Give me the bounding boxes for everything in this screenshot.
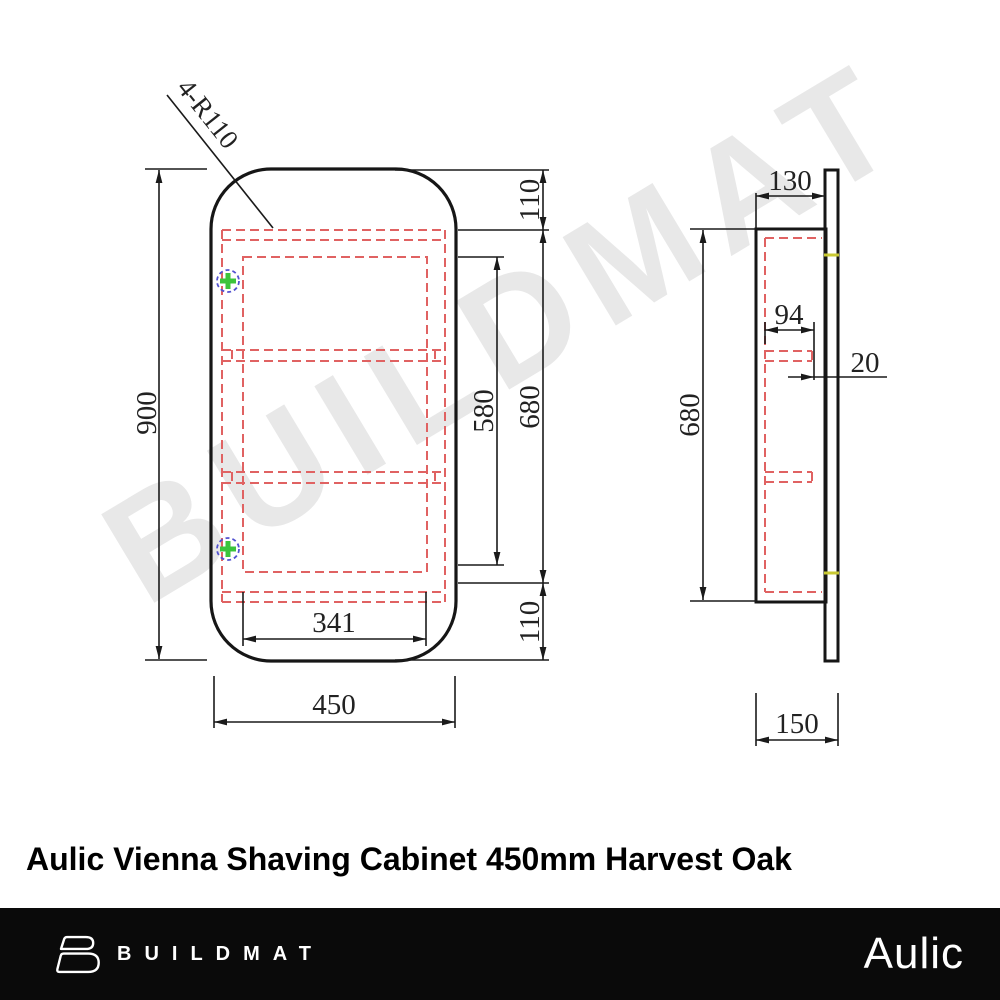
product-drawing-page: BUILDMAT	[0, 0, 1000, 1000]
footer-bar: BUILDMAT Aulic	[0, 908, 1000, 1000]
dim-side-overall-depth-label: 150	[775, 708, 819, 740]
brand-name: BUILDMAT	[117, 943, 324, 966]
dim-side-overall-depth: 150	[756, 693, 838, 746]
dim-side-shelf-depth-label: 94	[775, 299, 805, 331]
hinge-marker-bottom	[217, 538, 239, 560]
brand-lockup: BUILDMAT	[55, 935, 324, 974]
dim-front-bottom-offset: 110	[514, 583, 546, 660]
dim-front-height-label: 900	[131, 391, 163, 435]
dim-front-width-label: 450	[312, 689, 356, 721]
dim-front-height: 900	[131, 169, 207, 660]
dim-front-width: 450	[214, 676, 455, 728]
dim-front-inner-width: 341	[243, 592, 426, 646]
front-hidden-lines	[222, 230, 445, 602]
dim-side-door-offset-label: 20	[851, 347, 880, 379]
product-title: Aulic Vienna Shaving Cabinet 450mm Harve…	[26, 841, 792, 878]
cabinet-outline	[211, 169, 456, 661]
dim-side-depth: 130	[756, 165, 825, 229]
dim-side-height-label: 680	[674, 393, 706, 437]
corner-radius-callout: 4-R110	[167, 73, 273, 228]
dim-front-top-offset: 110	[514, 170, 546, 230]
dim-front-opening-height: 680	[514, 230, 546, 583]
dim-front-inner-height-label: 580	[468, 389, 500, 433]
sub-brand-name: Aulic	[864, 929, 964, 979]
hinge-marker-top	[217, 270, 239, 292]
side-hidden-lines	[765, 238, 822, 592]
dim-front-inner-height: 580	[468, 257, 500, 565]
side-view: 20 130 680	[674, 165, 887, 746]
dim-front-bottom-offset-label: 110	[514, 601, 546, 643]
dim-side-height: 680	[674, 229, 756, 601]
side-body-outline	[756, 229, 826, 602]
dim-front-inner-width-label: 341	[312, 607, 356, 639]
buildmat-b-icon	[55, 935, 101, 974]
dim-side-shelf-depth: 94	[765, 299, 814, 380]
dim-front-top-offset-label: 110	[514, 179, 546, 221]
dim-front-opening-height-label: 680	[514, 385, 546, 429]
front-view: 4-R110 900 450 341	[131, 73, 549, 728]
dim-side-depth-label: 130	[768, 165, 812, 197]
